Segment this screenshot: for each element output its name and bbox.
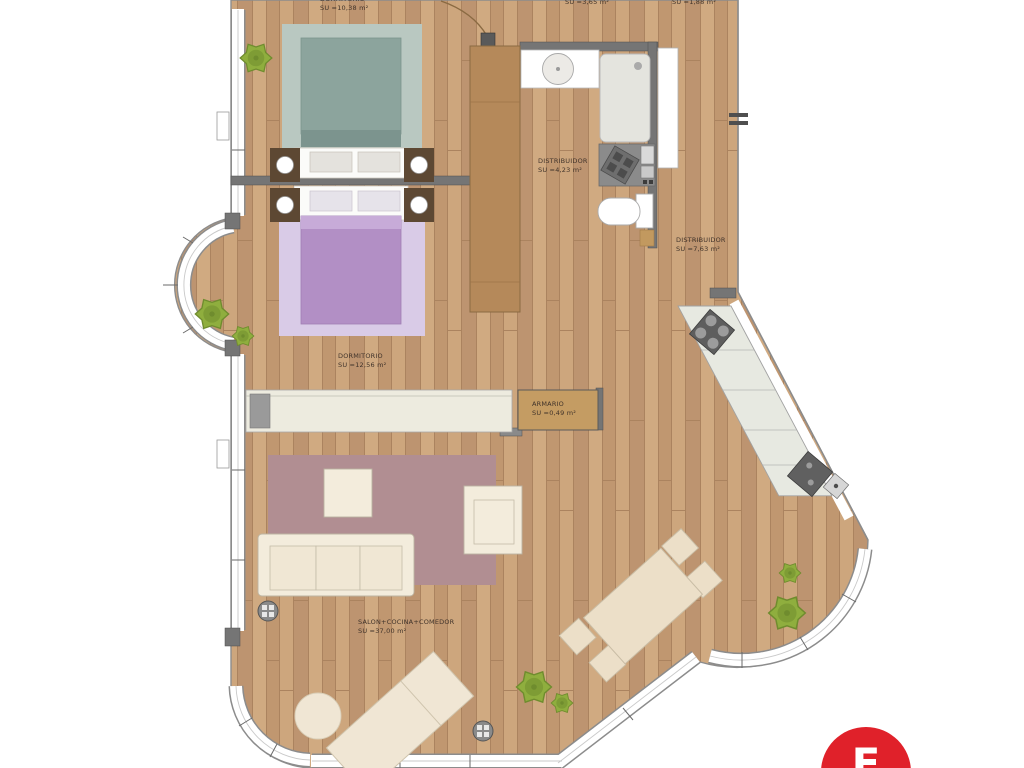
sideboard — [246, 390, 512, 432]
sofa — [258, 534, 414, 596]
room-label-armario: ARMARIO SU =0,49 m² — [532, 400, 576, 417]
wardrobe — [470, 46, 520, 312]
coffee-table — [324, 469, 372, 517]
room-label-bano: SU =3,65 m² — [565, 0, 609, 7]
floor-plan-drawing — [0, 0, 1024, 768]
room-label-salon: SALON+COCINA+COMEDOR SU =37,00 m² — [358, 618, 454, 635]
armchair — [464, 486, 522, 554]
bed-double-green — [294, 38, 408, 178]
room-label-distribuidor-2: DISTRIBUIDOR SU =7,63 m² — [676, 236, 726, 253]
washing-machine — [599, 144, 655, 186]
bed-double-purple — [294, 186, 408, 324]
room-label-top-right: SU =1,88 m² — [672, 0, 716, 7]
side-table — [295, 693, 341, 739]
open-door-leaf — [658, 48, 678, 168]
room-label-dormitorio-ppal: DORMITORIO SU =10,38 m² — [320, 0, 368, 12]
toilet — [598, 194, 653, 228]
shower-drain-icon — [634, 62, 642, 70]
floor-plan-page: DORMITORIO SU =10,38 m² SU =3,65 m² SU =… — [0, 0, 1024, 768]
floor-drain-icon-2 — [473, 721, 493, 741]
bathroom-vanity — [521, 50, 599, 88]
floor-drain-icon — [258, 601, 278, 621]
room-label-dormitorio: DORMITORIO SU =12,56 m² — [338, 352, 386, 369]
room-label-distribuidor-1: DISTRIBUIDOR SU =4,23 m² — [538, 157, 588, 174]
bathroom-cabinet — [640, 230, 654, 246]
shower — [600, 54, 650, 142]
